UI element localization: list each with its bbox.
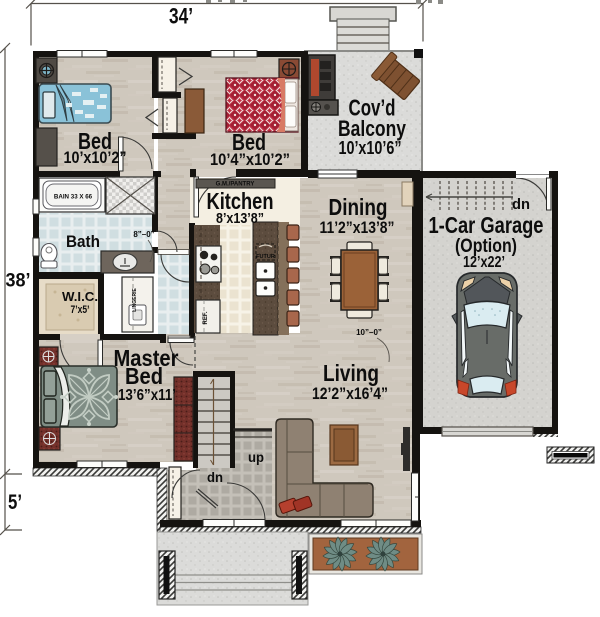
svg-text:7’x5’: 7’x5’ (71, 304, 90, 316)
svg-text:FUTUR: FUTUR (256, 254, 275, 260)
svg-text:13’6”x11’: 13’6”x11’ (118, 387, 176, 404)
svg-text:LINGERIE: LINGERIE (132, 288, 138, 312)
svg-text:8’x13’8”: 8’x13’8” (216, 210, 264, 227)
svg-text:1-Car Garage: 1-Car Garage (429, 212, 544, 238)
svg-text:Dining: Dining (329, 194, 388, 220)
svg-text:REF.: REF. (203, 311, 209, 324)
svg-text:10’x10’2”: 10’x10’2” (64, 148, 127, 167)
svg-text:12’x22’: 12’x22’ (463, 254, 505, 271)
svg-text:W.I.C.: W.I.C. (62, 289, 98, 304)
svg-text:11’2”x13’8”: 11’2”x13’8” (320, 218, 395, 237)
svg-text:5’: 5’ (8, 491, 22, 514)
svg-text:38’: 38’ (6, 271, 31, 292)
svg-text:BAIN 33 X 66: BAIN 33 X 66 (54, 194, 93, 201)
svg-text:dn: dn (207, 469, 223, 485)
svg-text:10”–0”: 10”–0” (356, 328, 382, 337)
svg-text:34’: 34’ (169, 4, 193, 29)
svg-text:10’x10’6”: 10’x10’6” (339, 138, 402, 158)
svg-text:Bath: Bath (66, 232, 100, 251)
svg-text:8”–0”: 8”–0” (133, 230, 154, 239)
svg-text:dn: dn (512, 196, 530, 213)
svg-text:Living: Living (323, 360, 379, 386)
svg-text:G.M./PANTRY: G.M./PANTRY (216, 182, 255, 188)
svg-text:12’2”x16’4”: 12’2”x16’4” (312, 384, 388, 403)
svg-text:10’4”x10’2”: 10’4”x10’2” (210, 150, 290, 169)
svg-text:up: up (248, 449, 264, 465)
svg-text:Bed: Bed (125, 363, 163, 389)
